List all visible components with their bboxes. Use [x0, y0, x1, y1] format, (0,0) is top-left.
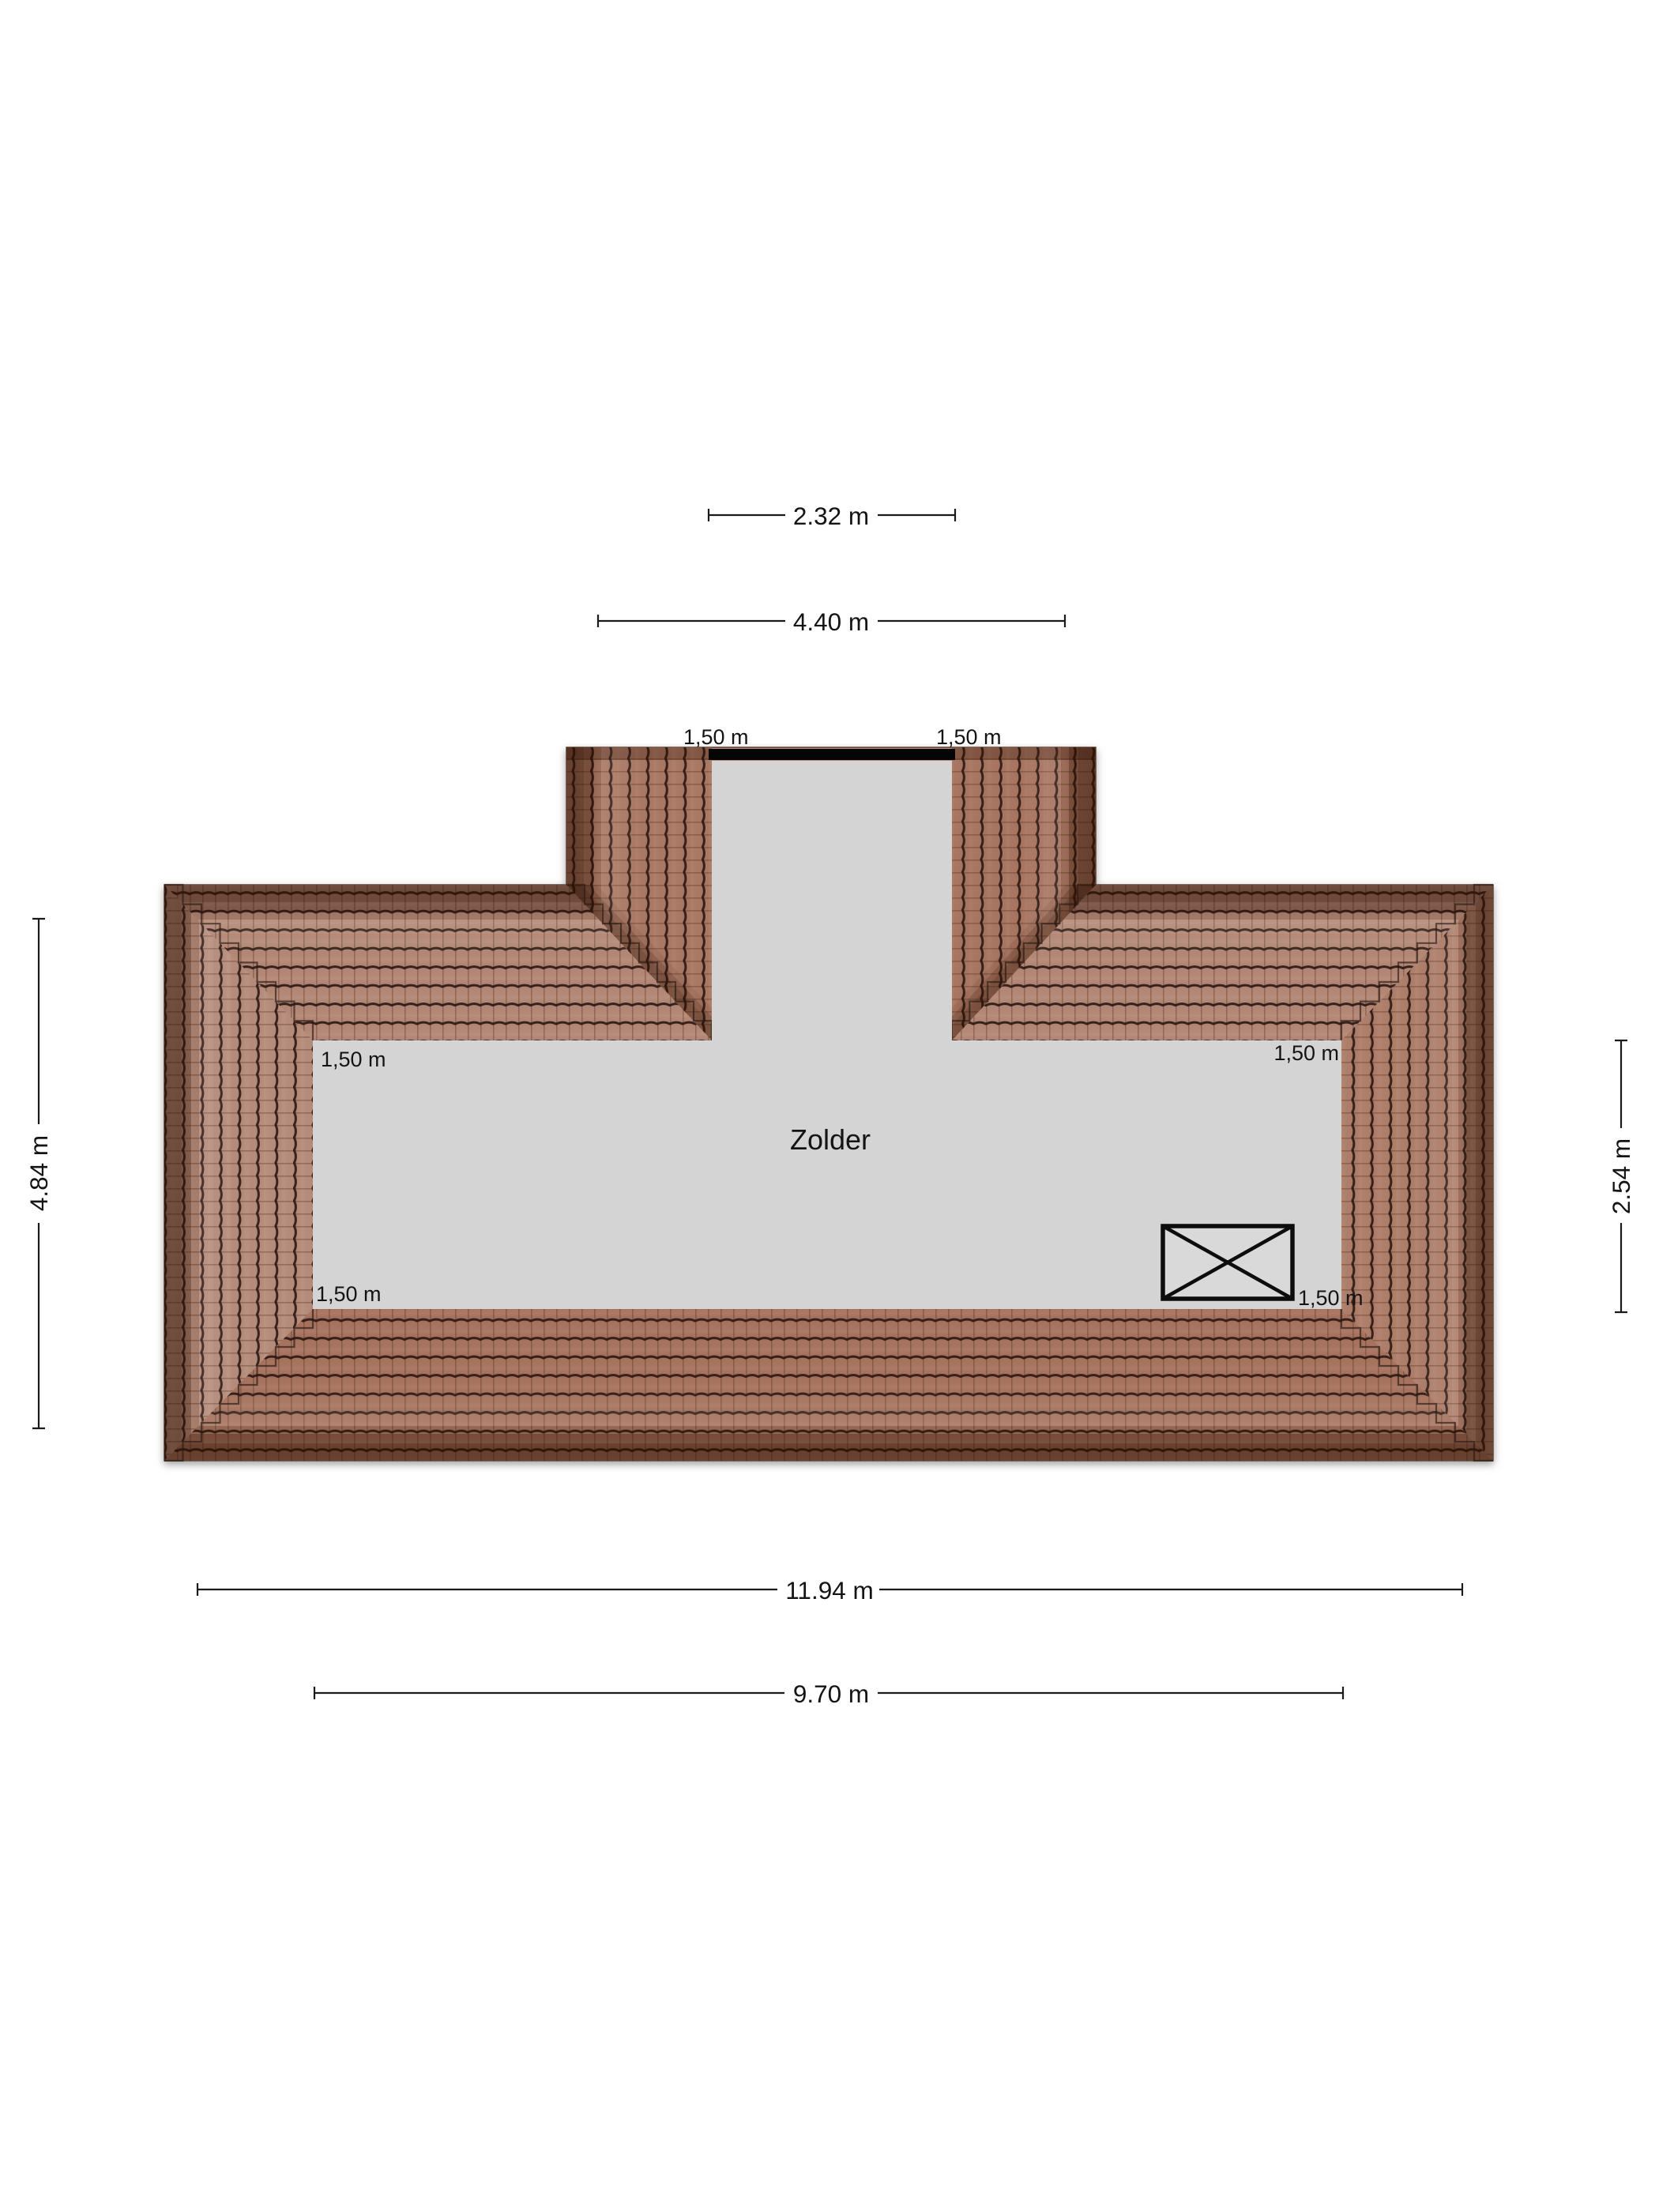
svg-text:4.84 m: 4.84 m: [24, 1135, 53, 1211]
svg-text:11.94 m: 11.94 m: [785, 1576, 873, 1604]
svg-text:9.70 m: 9.70 m: [793, 1680, 869, 1708]
svg-text:2.32 m: 2.32 m: [793, 502, 869, 530]
svg-text:1,50 m: 1,50 m: [1298, 1286, 1364, 1310]
svg-text:4.40 m: 4.40 m: [793, 608, 869, 636]
svg-text:1,50 m: 1,50 m: [316, 1282, 382, 1306]
svg-text:2.54 m: 2.54 m: [1607, 1138, 1635, 1214]
svg-text:1,50 m: 1,50 m: [683, 725, 749, 749]
svg-text:1,50 m: 1,50 m: [936, 725, 1002, 749]
svg-text:1,50 m: 1,50 m: [321, 1048, 386, 1071]
svg-text:Zolder: Zolder: [790, 1123, 871, 1156]
svg-text:1,50 m: 1,50 m: [1273, 1041, 1339, 1065]
